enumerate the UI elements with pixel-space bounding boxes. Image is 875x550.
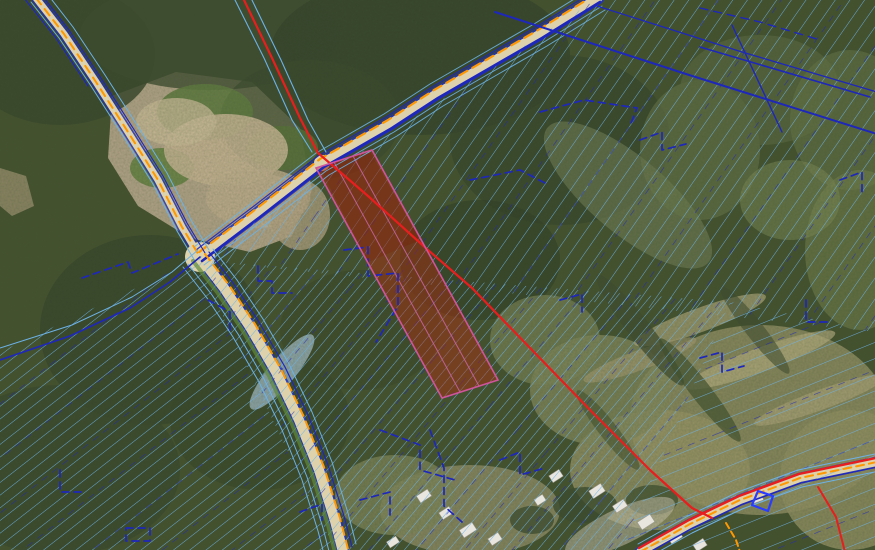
aerial-cadastral-map[interactable] (0, 0, 875, 550)
map-viewport[interactable] (0, 0, 875, 550)
